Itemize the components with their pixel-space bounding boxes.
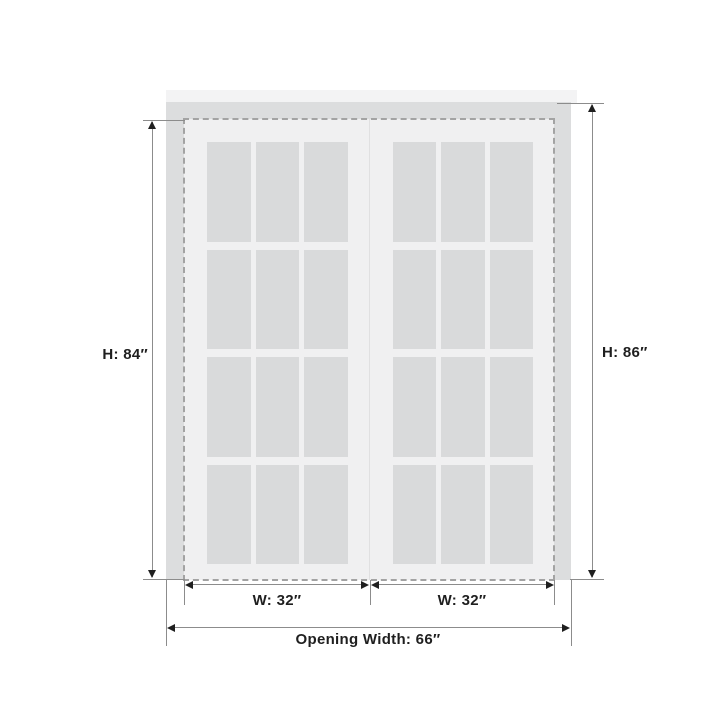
glass-pane xyxy=(207,357,251,457)
arrowhead-left-icon xyxy=(167,624,175,632)
door-dimension-diagram: H: 84″ H: 86″ W: 32″ W: 32″ Opening Widt… xyxy=(0,0,720,720)
glass-pane xyxy=(304,142,348,242)
glass-pane xyxy=(304,465,348,565)
left-door-width-label: W: 32″ xyxy=(232,592,322,610)
glass-pane xyxy=(441,142,484,242)
arrowhead-right-icon xyxy=(562,624,570,632)
right-door-width-label: W: 32″ xyxy=(417,592,507,610)
glass-pane xyxy=(441,250,484,350)
door-right xyxy=(370,119,554,580)
glass-pane xyxy=(256,357,300,457)
arrowhead-down-icon xyxy=(148,570,156,578)
door-height-label: H: 84″ xyxy=(88,346,148,364)
door-unit xyxy=(184,119,554,580)
glass-pane xyxy=(207,250,251,350)
glass-pane xyxy=(207,465,251,565)
glass-pane xyxy=(393,250,436,350)
glass-pane xyxy=(490,142,533,242)
arrowhead-right-icon xyxy=(361,581,369,589)
glass-pane xyxy=(304,250,348,350)
glass-pane xyxy=(490,465,533,565)
arrowhead-left-icon xyxy=(185,581,193,589)
glass-pane xyxy=(256,142,300,242)
glass-pane xyxy=(393,465,436,565)
glass-pane xyxy=(207,142,251,242)
opening-width-label: Opening Width: 66″ xyxy=(260,631,476,649)
opening-height-label: H: 86″ xyxy=(602,344,648,362)
glass-pane xyxy=(256,250,300,350)
glass-pane xyxy=(393,142,436,242)
arrowhead-down-icon xyxy=(588,570,596,578)
arrowhead-right-icon xyxy=(546,581,554,589)
glass-pane xyxy=(256,465,300,565)
arrowhead-up-icon xyxy=(148,121,156,129)
door-left xyxy=(184,119,369,580)
glass-pane xyxy=(393,357,436,457)
arrowhead-left-icon xyxy=(371,581,379,589)
glass-pane xyxy=(441,357,484,457)
glass-pane xyxy=(490,250,533,350)
glass-pane xyxy=(441,465,484,565)
arrowhead-up-icon xyxy=(588,104,596,112)
glass-pane xyxy=(304,357,348,457)
glass-pane xyxy=(490,357,533,457)
